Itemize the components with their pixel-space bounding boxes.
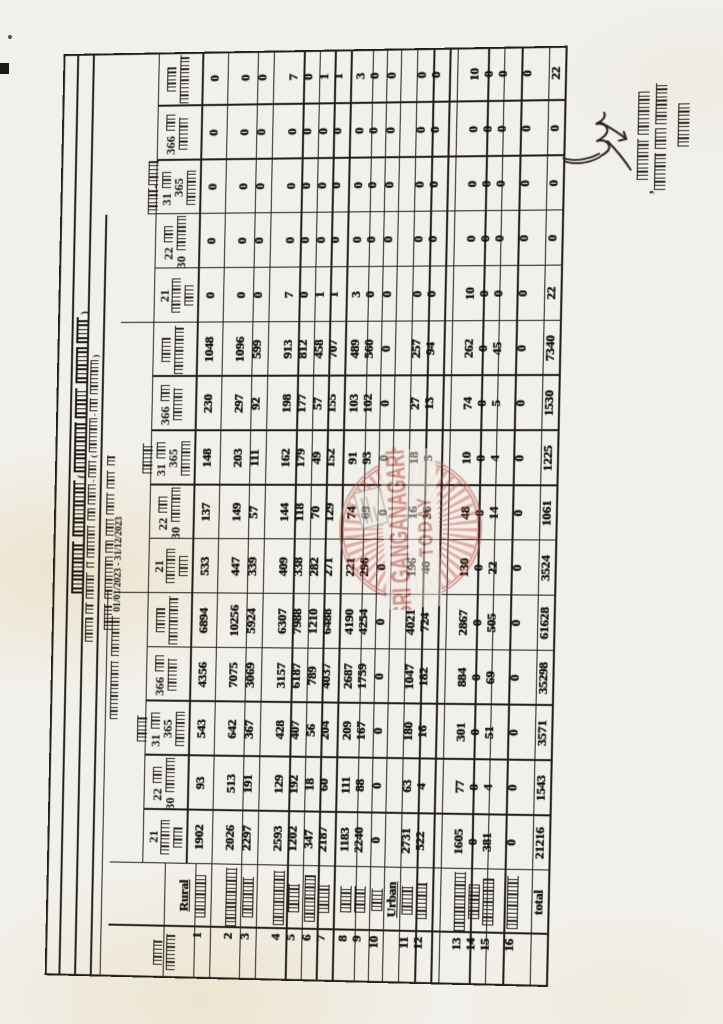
svg-text:TODAY: TODAY (413, 495, 438, 558)
